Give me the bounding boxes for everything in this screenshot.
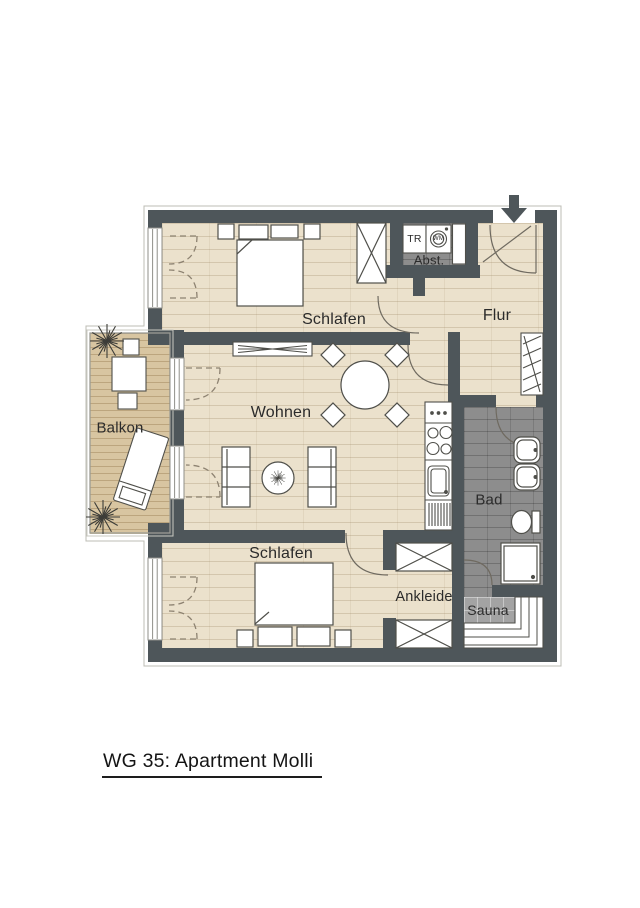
room-label-balkon: Balkon: [96, 420, 143, 437]
dining-table: [341, 361, 389, 409]
wohnen-door-arc: [408, 345, 448, 385]
bed-body: [237, 240, 303, 306]
nightstand: [335, 630, 351, 647]
toilet-tank: [532, 511, 540, 533]
bed-top: [218, 224, 320, 306]
pillow: [258, 627, 292, 646]
plant-icon: [90, 324, 124, 358]
toilet: [512, 511, 532, 534]
plan-title: WG 35: Apartment Molli: [102, 750, 322, 778]
chair: [321, 403, 345, 427]
entrance-arrow-icon: [501, 195, 527, 223]
balcony-door-window: [170, 446, 184, 499]
balcony-table: [112, 357, 146, 391]
room-label-schlafen-bottom: Schlafen: [249, 545, 313, 563]
floor-plan: Schlafen Flur Abst. Wohnen Balkon Bad Sc…: [0, 0, 640, 908]
sun-lounger: [113, 428, 169, 511]
room-label-ankleide: Ankleide: [395, 589, 452, 605]
window: [148, 228, 162, 308]
bed-body: [255, 563, 333, 625]
sofa-right: [308, 447, 336, 507]
side-table-plant: [262, 462, 294, 494]
room-label-sauna: Sauna: [467, 602, 508, 618]
washing-machine-label: WM: [433, 236, 444, 242]
sideboard: [233, 342, 312, 356]
dryer-label: TR: [407, 233, 421, 245]
room-label-flur: Flur: [483, 307, 511, 325]
pillow: [239, 225, 268, 239]
dashed-swings: [169, 236, 220, 639]
kitchenette: [425, 402, 452, 530]
room-label-bad: Bad: [475, 492, 502, 509]
nightstand: [237, 630, 253, 647]
dining-set: [321, 343, 409, 427]
chair: [321, 343, 345, 367]
window: [148, 558, 162, 640]
room-label-schlafen-top: Schlafen: [302, 311, 366, 329]
plant-icon: [86, 500, 120, 534]
nightstand: [218, 224, 234, 239]
chair: [385, 343, 409, 367]
schlafen-top-door-arc: [378, 296, 419, 333]
abst-shelf: [453, 224, 466, 264]
bathroom-fixtures: [501, 437, 540, 584]
room-label-abstellraum: Abst.: [414, 253, 445, 268]
entrance-door-arc: [490, 225, 536, 273]
wardrobe-x: [357, 223, 386, 283]
bed-bottom: [237, 563, 351, 647]
floor-plan-page: Schlafen Flur Abst. Wohnen Balkon Bad Sc…: [0, 0, 640, 908]
balcony-chair: [118, 393, 137, 409]
room-label-wohnen: Wohnen: [251, 404, 312, 422]
sofa-left: [222, 447, 250, 507]
balcony-chair: [123, 339, 139, 355]
sauna-door-arc: [464, 560, 492, 585]
schlafen-bottom-door-arc: [346, 533, 388, 575]
pillow: [271, 225, 298, 238]
balcony-door-window: [170, 358, 184, 410]
coat-rack: [521, 333, 543, 395]
nightstand: [304, 224, 320, 239]
chair: [385, 403, 409, 427]
pillow: [297, 627, 330, 646]
